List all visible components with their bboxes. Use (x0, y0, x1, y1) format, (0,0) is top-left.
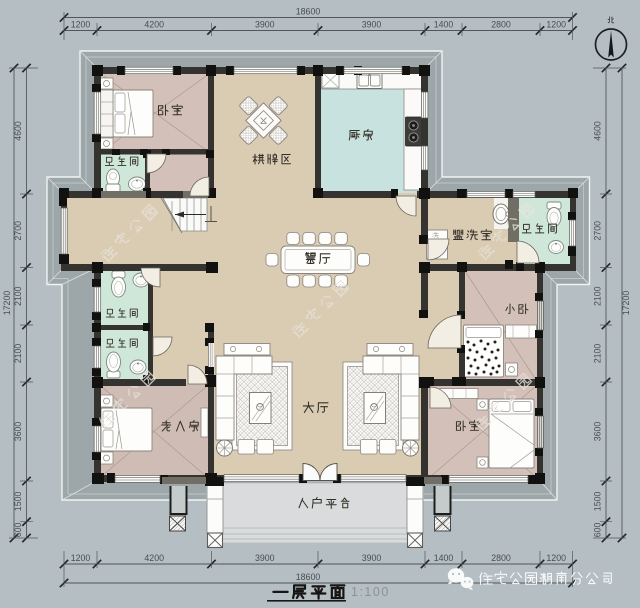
svg-text:18600: 18600 (296, 7, 321, 17)
svg-text:4600: 4600 (593, 121, 603, 141)
svg-text:600: 600 (13, 522, 23, 537)
svg-text:3900: 3900 (255, 20, 275, 30)
svg-text:2100: 2100 (593, 286, 603, 306)
svg-text:2800: 2800 (491, 553, 511, 563)
svg-text:1500: 1500 (13, 492, 23, 512)
svg-text:1400: 1400 (434, 553, 454, 563)
svg-text:1500: 1500 (593, 492, 603, 512)
svg-text:2100: 2100 (593, 344, 603, 364)
svg-text:2100: 2100 (13, 344, 23, 364)
svg-text:1200: 1200 (546, 20, 566, 30)
svg-text:17200: 17200 (2, 291, 12, 316)
svg-text:2100: 2100 (13, 286, 23, 306)
svg-text:1200: 1200 (71, 553, 91, 563)
svg-text:1200: 1200 (71, 20, 91, 30)
svg-text:2700: 2700 (593, 221, 603, 241)
svg-text:3900: 3900 (255, 553, 275, 563)
svg-text:1200: 1200 (546, 553, 566, 563)
svg-text:2800: 2800 (491, 20, 511, 30)
svg-text:4600: 4600 (13, 121, 23, 141)
svg-text:3600: 3600 (593, 422, 603, 442)
svg-text:2700: 2700 (13, 221, 23, 241)
svg-text:3900: 3900 (362, 20, 382, 30)
svg-text:4200: 4200 (144, 20, 164, 30)
svg-text:1:100: 1:100 (351, 585, 390, 599)
svg-text:1400: 1400 (434, 20, 454, 30)
svg-text:17200: 17200 (621, 291, 631, 316)
svg-text:18600: 18600 (296, 572, 321, 582)
svg-text:600: 600 (593, 522, 603, 537)
svg-text:3600: 3600 (13, 422, 23, 442)
svg-text:3900: 3900 (362, 553, 382, 563)
svg-text:4200: 4200 (144, 553, 164, 563)
